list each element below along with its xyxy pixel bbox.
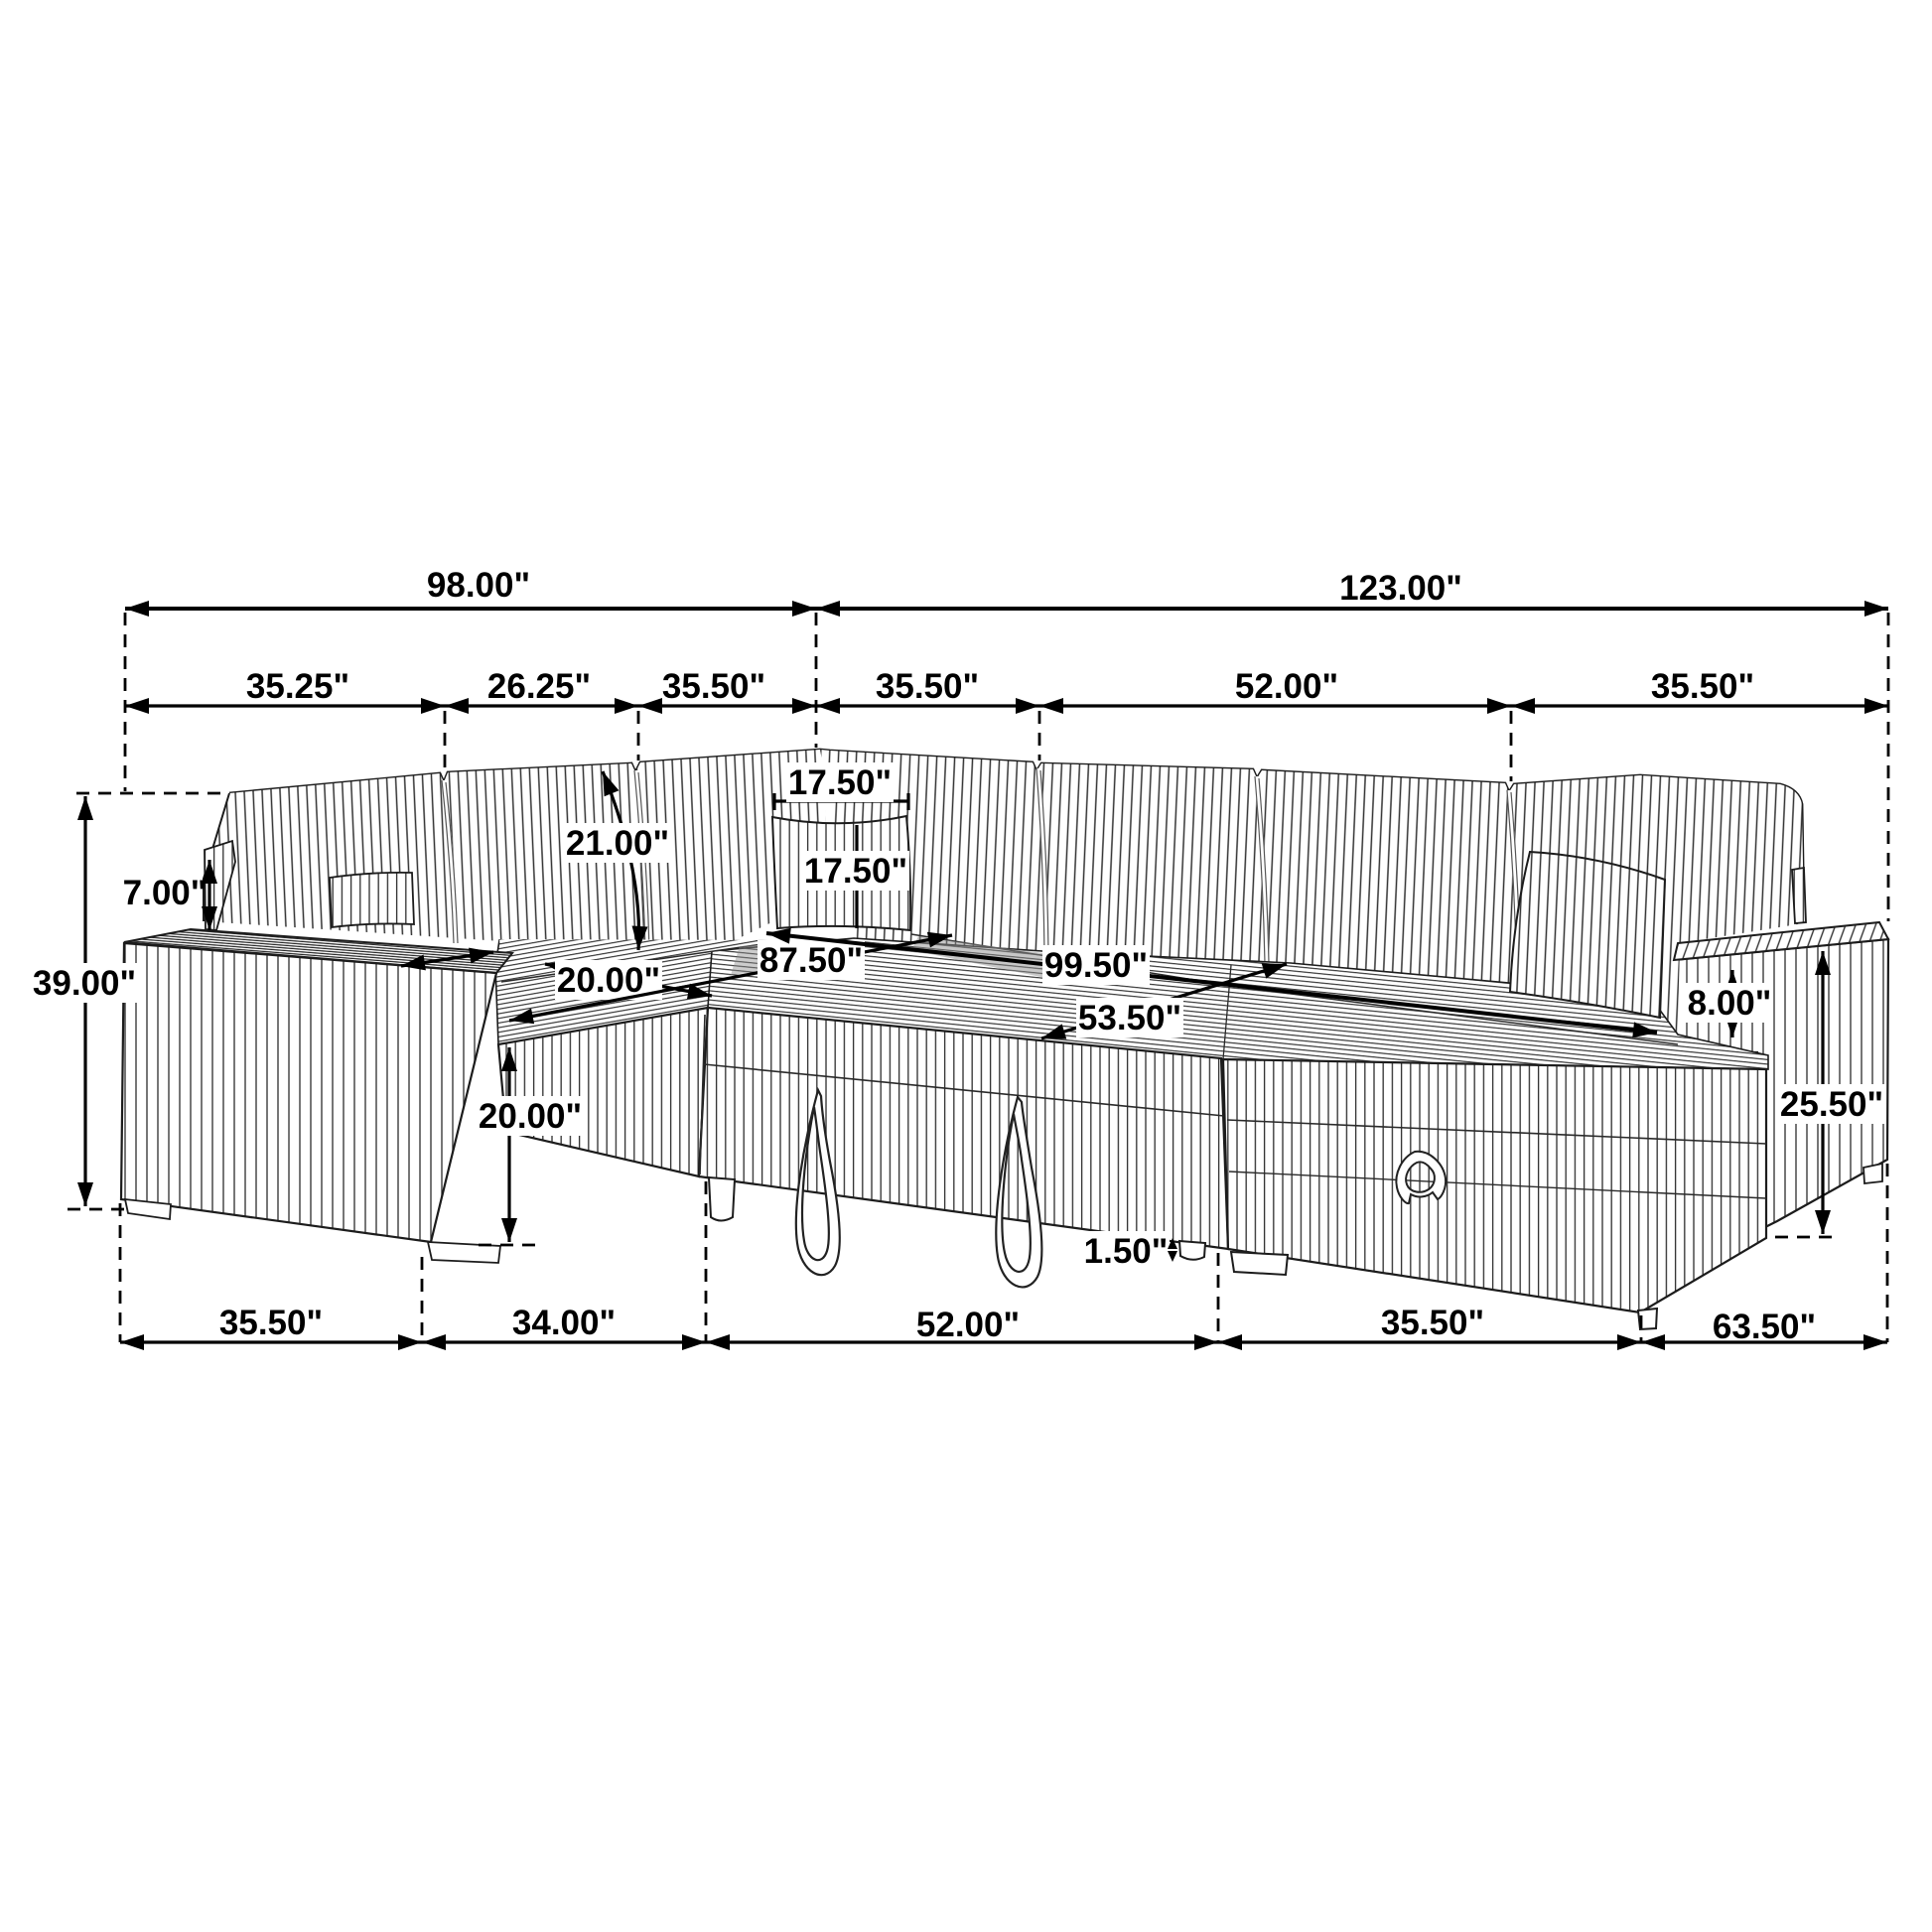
svg-text:99.50": 99.50" [1044, 946, 1148, 985]
svg-text:7.00": 7.00" [123, 874, 207, 912]
svg-text:35.50": 35.50" [1651, 667, 1754, 706]
svg-text:1.50": 1.50" [1084, 1232, 1169, 1271]
svg-text:17.50": 17.50" [804, 852, 907, 891]
svg-text:20.00": 20.00" [479, 1097, 582, 1136]
svg-text:98.00": 98.00" [427, 566, 530, 605]
svg-text:35.50": 35.50" [1381, 1304, 1484, 1342]
svg-text:21.00": 21.00" [566, 824, 669, 863]
svg-text:17.50": 17.50" [788, 763, 892, 802]
svg-text:8.00": 8.00" [1688, 984, 1772, 1023]
svg-text:87.50": 87.50" [759, 941, 863, 980]
svg-text:39.00": 39.00" [33, 964, 136, 1003]
svg-text:52.00": 52.00" [1235, 667, 1338, 706]
svg-text:35.50": 35.50" [662, 667, 765, 706]
svg-text:35.50": 35.50" [876, 667, 979, 706]
svg-text:26.25": 26.25" [487, 667, 591, 706]
svg-text:123.00": 123.00" [1339, 569, 1462, 608]
svg-text:63.50": 63.50" [1713, 1308, 1816, 1346]
svg-text:34.00": 34.00" [512, 1304, 616, 1342]
svg-text:35.50": 35.50" [219, 1304, 323, 1342]
svg-text:25.50": 25.50" [1780, 1085, 1883, 1124]
svg-text:53.50": 53.50" [1078, 999, 1181, 1037]
svg-text:52.00": 52.00" [916, 1306, 1020, 1344]
svg-text:35.25": 35.25" [246, 667, 349, 706]
